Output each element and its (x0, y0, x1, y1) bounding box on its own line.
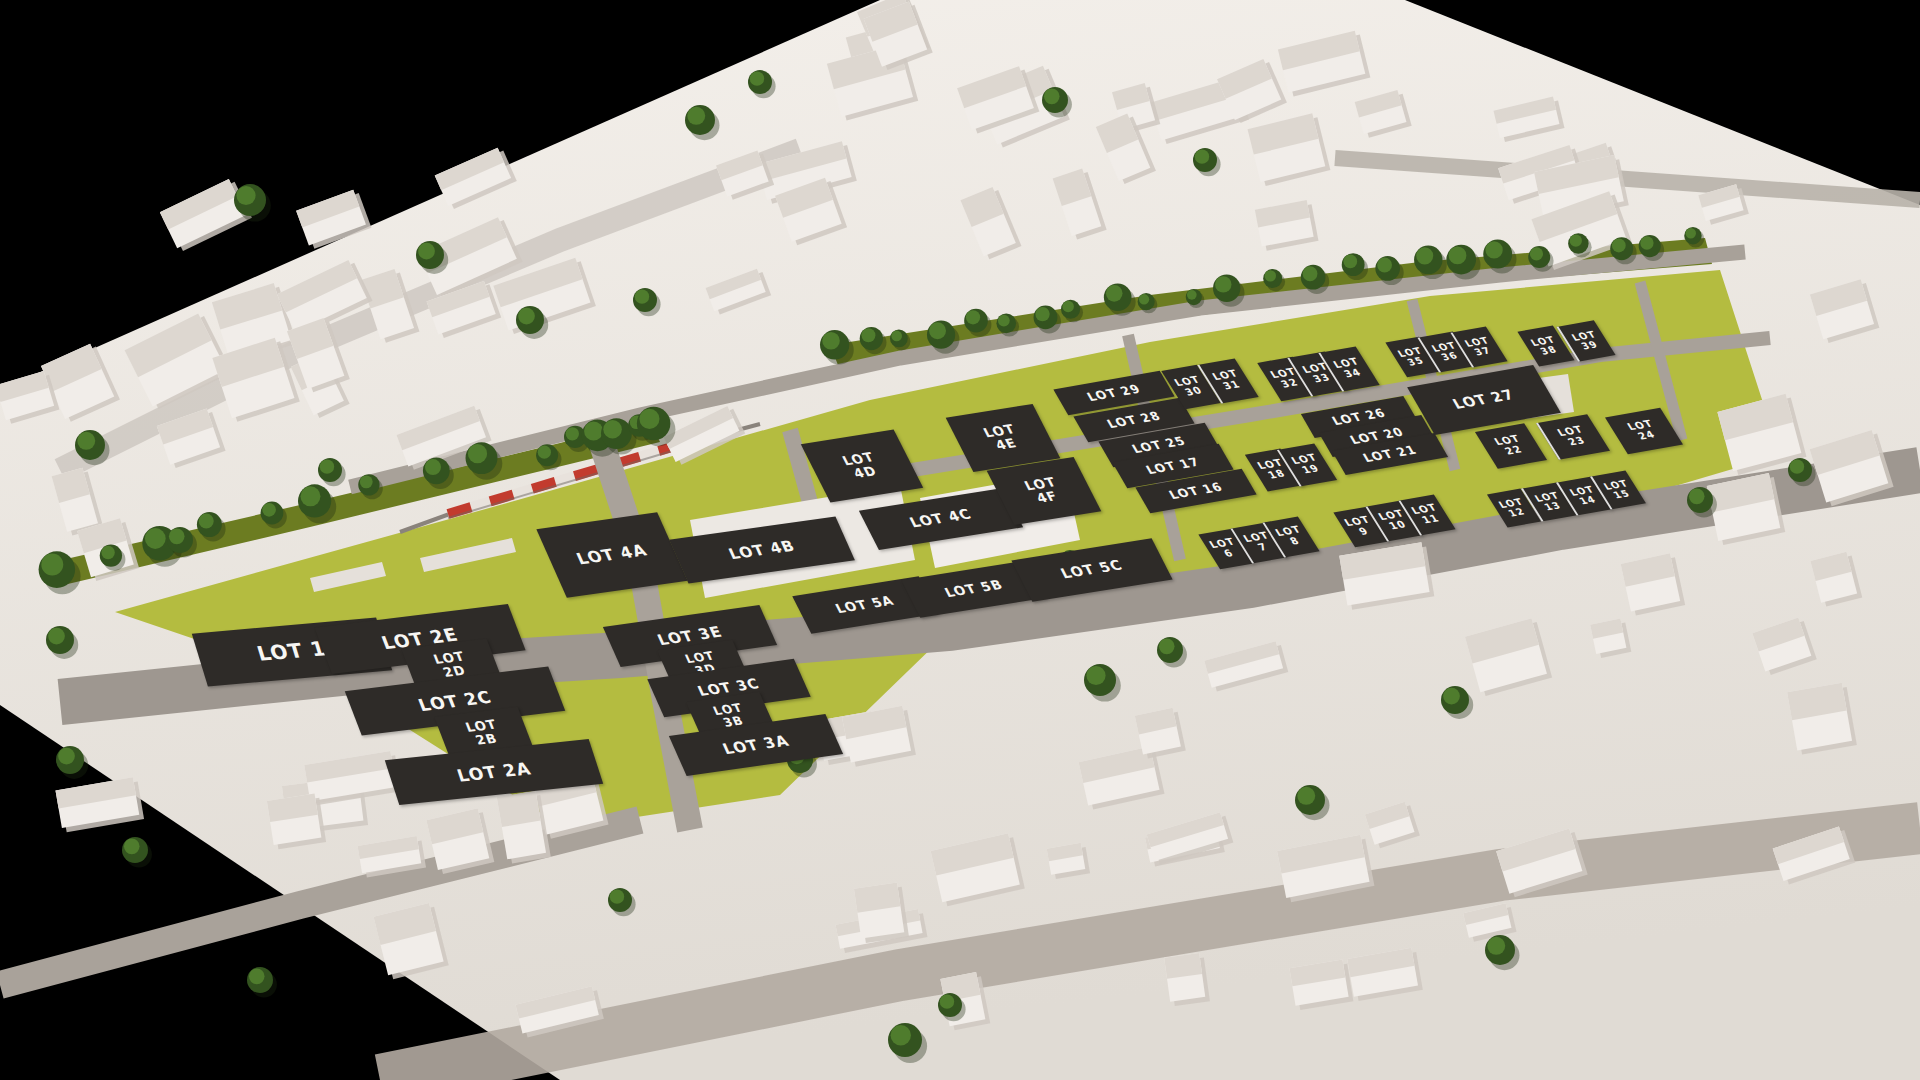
lot-label: LOT 4A (574, 542, 650, 568)
lot-label: 7 (1256, 542, 1270, 553)
lot-label: 9 (1357, 526, 1371, 537)
lot-label: 30 (1183, 386, 1205, 399)
lot-label: LOT 2A (455, 759, 534, 785)
lot-label: 32 (1279, 378, 1301, 391)
lot-label: 12 (1506, 507, 1527, 519)
lot-label: 8 (1288, 536, 1302, 547)
lot-label: 11 (1420, 513, 1442, 526)
lot-label: 14 (1577, 495, 1598, 507)
lot-label: 22 (1503, 445, 1525, 458)
lot-label: 38 (1538, 345, 1559, 357)
lot-label: 31 (1221, 379, 1243, 392)
lot-label: 34 (1342, 367, 1364, 380)
lot-label: 24 (1636, 430, 1658, 443)
lot-label: LOT 1 (255, 638, 330, 665)
lot-label: 36 (1439, 351, 1460, 363)
lot-label: LOT 5B (942, 578, 1005, 600)
lot-label: LOT 17 (1144, 455, 1203, 476)
lot-label: LOT 4C (907, 507, 974, 531)
lot-label: LOT 16 (1167, 480, 1226, 501)
lot-label: LOT 29 (1085, 382, 1144, 403)
building (854, 882, 909, 944)
lot-label: 37 (1472, 346, 1493, 358)
scene-background (0, 0, 1920, 1080)
lot-label: 2B (474, 732, 500, 748)
lot-label: 18 (1266, 469, 1288, 482)
lot-label: 15 (1611, 489, 1632, 501)
lot-label: 39 (1579, 340, 1600, 352)
lot-label: LOT 21 (1361, 443, 1420, 464)
lot-label: 19 (1300, 463, 1322, 476)
lot-label: LOT 5C (1058, 558, 1125, 582)
lot-label: 4D (851, 464, 879, 481)
lot-label: 35 (1405, 356, 1426, 368)
building (1590, 618, 1631, 659)
lot-label: 6 (1222, 548, 1236, 559)
lot-label: 13 (1542, 501, 1563, 513)
building (1047, 842, 1090, 880)
lot-label: 33 (1311, 372, 1333, 385)
lot-label: 23 (1566, 435, 1588, 448)
lot-label: 4E (993, 436, 1019, 452)
building (1164, 952, 1210, 1006)
building (1621, 552, 1686, 616)
lot-label: 10 (1387, 519, 1409, 532)
lot-label: LOT 3A (720, 733, 791, 757)
building (1135, 707, 1186, 759)
building (1787, 682, 1857, 755)
lot-label: 4F (1034, 489, 1060, 505)
lot-label: LOT 27 (1450, 388, 1517, 412)
building (267, 793, 326, 850)
lot-label: LOT 4B (726, 538, 797, 562)
lot-label: LOT 5A (833, 594, 896, 616)
site-plan-render: LOT 1LOT 2ELOT2DLOT 2CLOT2BLOT 2ALOT 3EL… (0, 0, 1920, 1080)
lot-label: LOT 28 (1105, 409, 1164, 430)
